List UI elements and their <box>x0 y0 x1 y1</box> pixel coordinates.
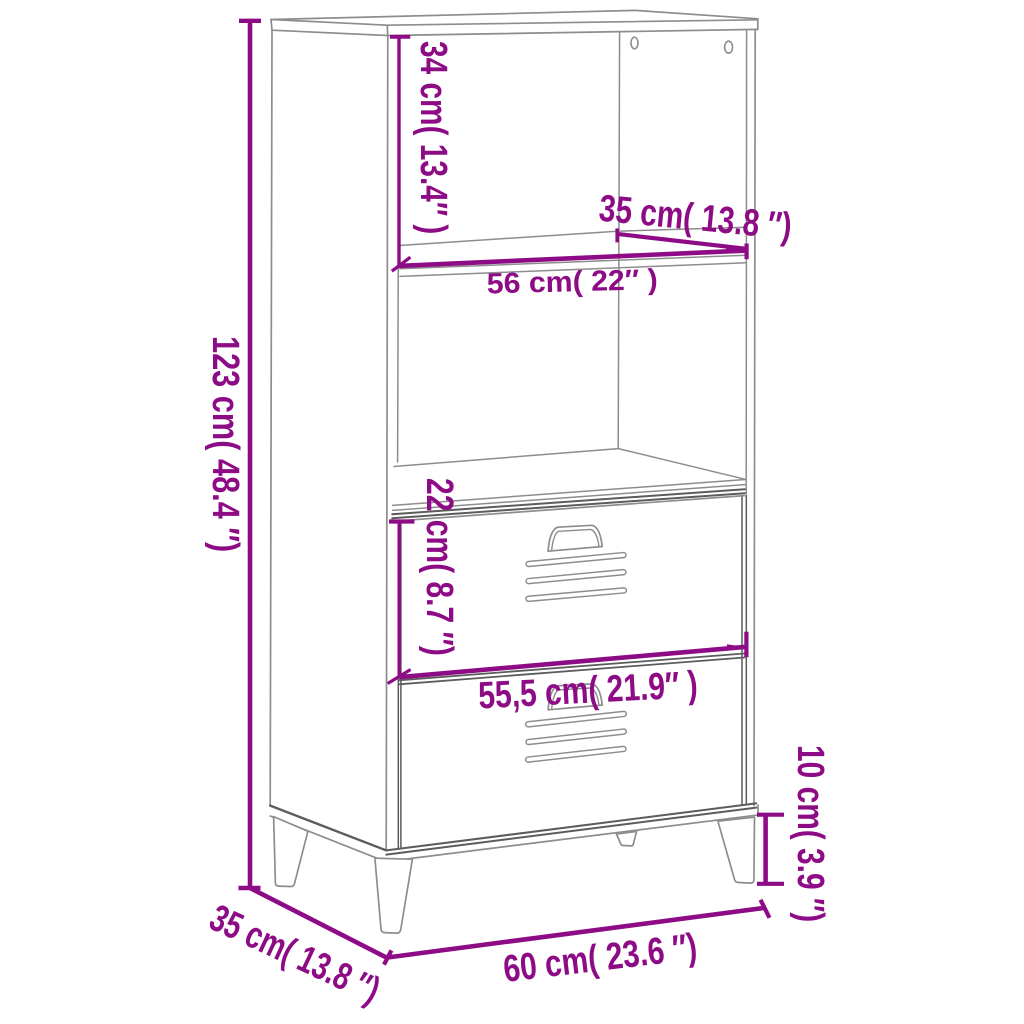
svg-text:34 cm( 13.4″ ): 34 cm( 13.4″ ) <box>412 41 454 234</box>
svg-text:56 cm( 22″ ): 56 cm( 22″ ) <box>486 264 658 301</box>
svg-text:10 cm( 3.9 ″): 10 cm( 3.9 ″) <box>789 745 831 922</box>
svg-text:123 cm( 48.4 ″): 123 cm( 48.4 ″) <box>204 336 246 552</box>
svg-text:22 cm( 8.7 ″): 22 cm( 8.7 ″) <box>418 478 460 656</box>
